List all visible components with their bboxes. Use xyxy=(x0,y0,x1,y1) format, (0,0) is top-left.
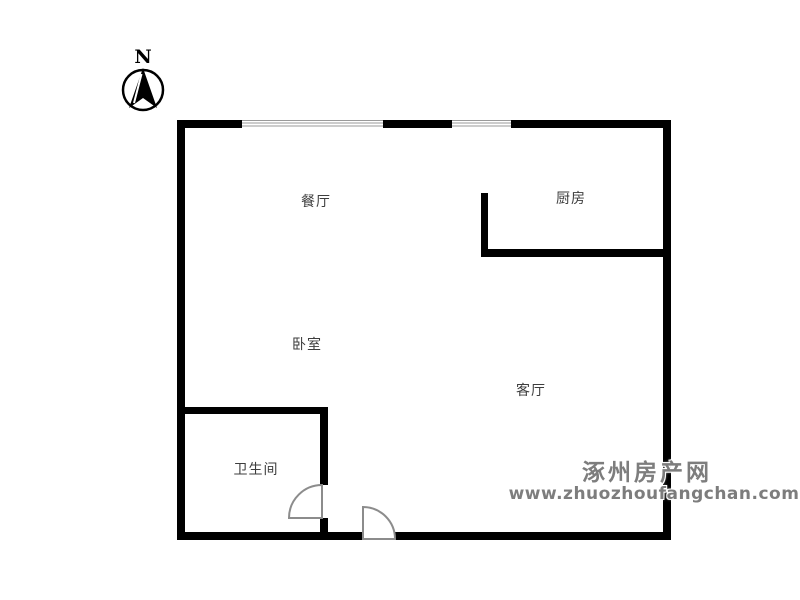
window-top-left xyxy=(242,120,383,128)
wall-kitchen-horizontal xyxy=(481,249,663,257)
wall-kitchen-vertical xyxy=(481,193,488,256)
bathroom-door-arc-icon xyxy=(289,485,322,518)
watermark-site-url: www.zhuozhoufangchan.com xyxy=(509,484,800,504)
room-label-dining: 餐厅 xyxy=(301,191,331,211)
room-label-kitchen: 厨房 xyxy=(556,188,586,208)
north-compass: N xyxy=(108,42,178,120)
room-label-bathroom: 卫生间 xyxy=(234,459,279,479)
wall-bathroom-horizontal xyxy=(177,407,328,414)
wall-top-segment-3 xyxy=(511,120,671,128)
watermark-site-name: 涿州房产网 xyxy=(582,453,712,487)
compass-arrow-icon xyxy=(120,65,166,115)
room-label-bedroom: 卧室 xyxy=(292,334,322,354)
wall-bottom-segment-2 xyxy=(395,532,671,540)
window-top-right xyxy=(452,120,511,128)
wall-top-segment-2 xyxy=(383,120,452,128)
wall-bathroom-vertical-lower xyxy=(320,518,328,532)
entry-door-arc-icon xyxy=(363,507,395,539)
wall-left xyxy=(177,120,185,540)
room-label-living: 客厅 xyxy=(516,380,546,400)
wall-bottom-segment-1 xyxy=(177,532,363,540)
wall-bathroom-vertical-upper xyxy=(320,407,328,485)
wall-top-segment-1 xyxy=(177,120,242,128)
floor-plan-canvas: N 餐厅 厨房 卧室 客厅 卫生间 涿州房产网 www.zhuozhoufang… xyxy=(0,0,800,600)
